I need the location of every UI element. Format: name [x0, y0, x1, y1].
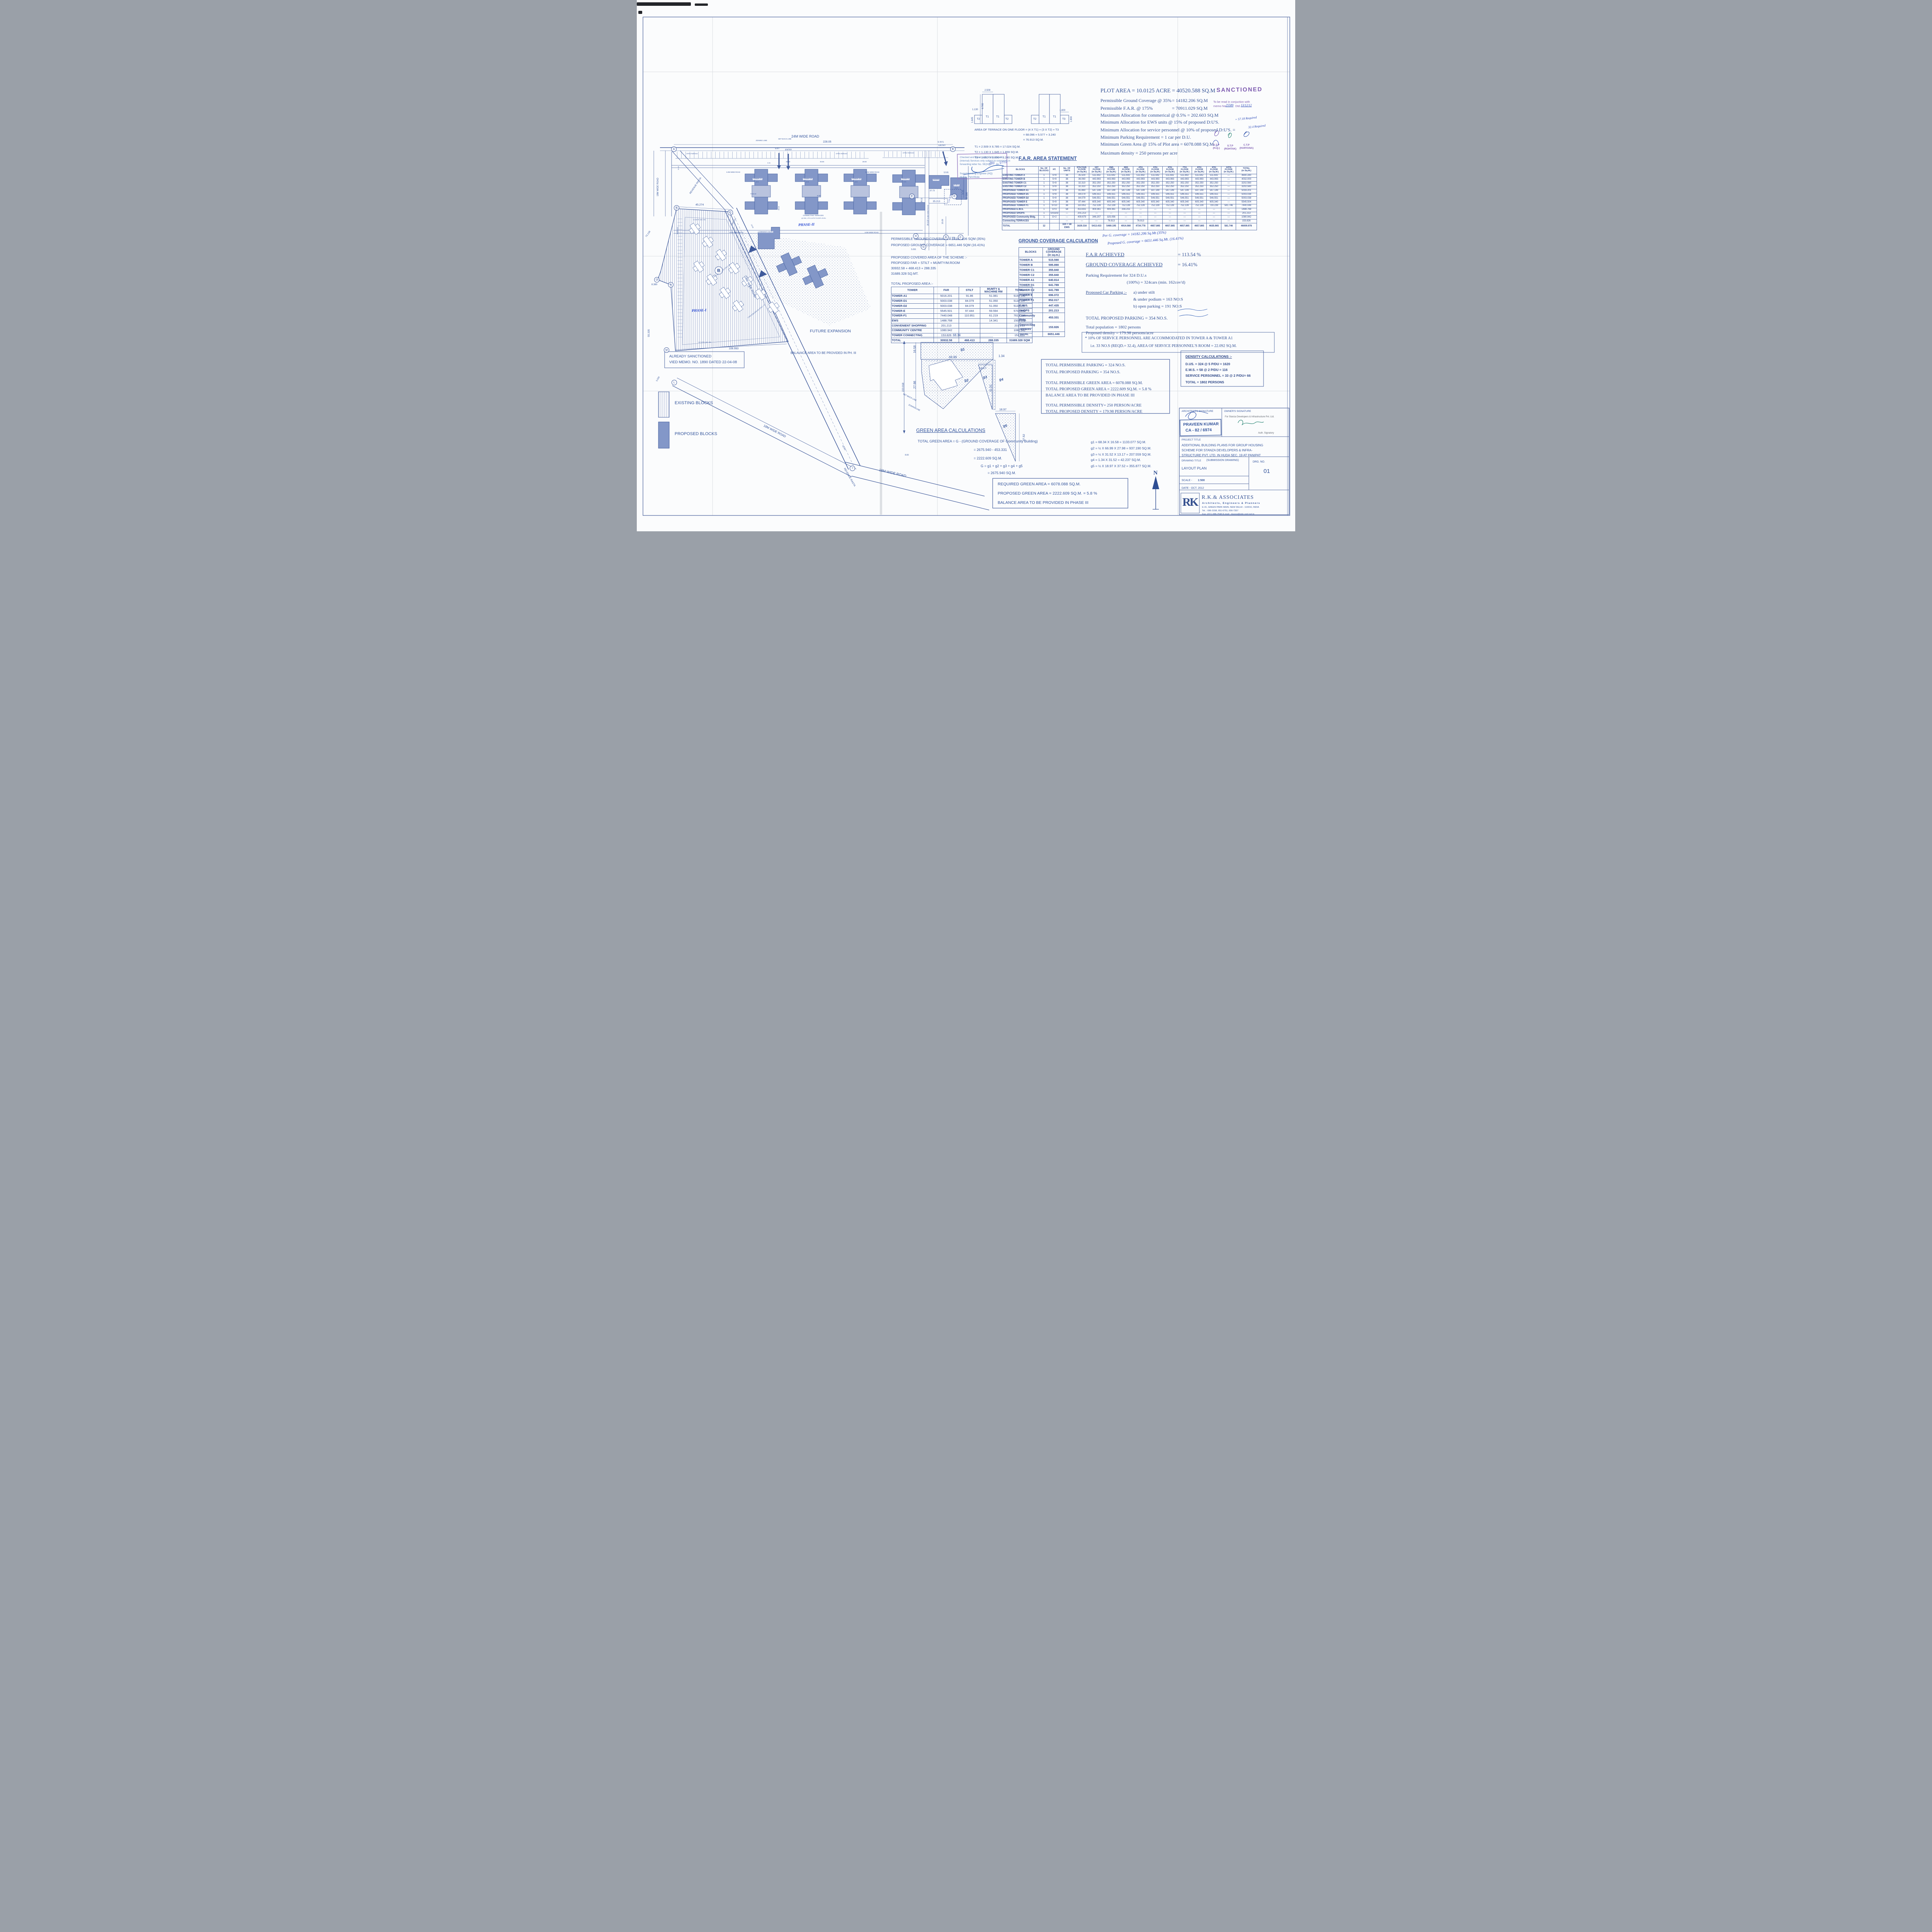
survey-point-marker: R	[674, 205, 679, 211]
table-cell: 1	[1039, 208, 1049, 212]
table-cell: PROPOSED E.W.S.	[1002, 208, 1039, 212]
table-cell: 409.679	[1075, 216, 1089, 219]
table-cell: 511.642	[1133, 174, 1148, 178]
plan-label: PROPOSED FAR + STILT + MUMTY/M.ROOM	[891, 261, 960, 265]
table-cell: 546.551	[1163, 193, 1177, 197]
plan-label: D.US. = 324 @ 5 P/DU = 1620	[1185, 362, 1230, 366]
table-cell: 352.250	[1119, 185, 1133, 189]
table-cell: ---	[1163, 219, 1177, 223]
table-row: TOTAL30932.58468.413288.33531689.328 SQM	[891, 338, 1032, 343]
plan-label: S+9	[855, 181, 857, 183]
table-cell: ---	[1221, 193, 1236, 197]
plan-label: & under podium = 163 NO:S	[1133, 298, 1183, 302]
plan-label: = 14182.206 SQ.M	[1172, 98, 1208, 103]
table-cell: 36	[1060, 193, 1075, 197]
table-cell	[959, 318, 980, 323]
plan-label: = 113.54 %	[1178, 252, 1201, 257]
plan-label: TOTAL PERMISSIBLE PARKING = 324 NO.S.	[1046, 363, 1126, 367]
table-cell: ---	[1221, 219, 1236, 223]
table-cell: ---	[1221, 216, 1236, 219]
plan-label: Parking Requirement for 324 D.U.s	[1086, 274, 1146, 278]
table-cell: 4657.865	[1163, 223, 1177, 230]
plan-label: TOTAL PERMISSIBLE DENSITY= 250 PERSON/AC…	[1046, 403, 1141, 408]
column-header: 5TH FLOOR (in Sq.M.)	[1148, 167, 1163, 174]
column-header: BLOCKS	[1019, 248, 1043, 257]
plan-label: 66.99	[949, 356, 957, 359]
plan-label: 1.800	[1070, 116, 1073, 122]
table-cell: 443.993	[1133, 178, 1148, 182]
table-cell: 547.149	[1119, 189, 1133, 193]
plan-label: T1	[996, 116, 999, 119]
table-row: TOWER-D15003.03884.07951.0505138.167	[891, 299, 1032, 304]
column-header: 2ND FLOOR (in Sq.M.)	[1104, 167, 1119, 174]
table-cell: 453.331	[1043, 313, 1065, 322]
table-cell: 752.139	[1133, 204, 1148, 208]
column-header: BLOCKS	[1002, 167, 1039, 174]
plan-label: g3 = ½ X 31.52 X 13.17 = 207.559 SQ.M.	[1091, 453, 1151, 456]
table-cell: 7440.048	[1236, 204, 1257, 208]
table-cell: 1080.942	[1236, 216, 1257, 219]
table-cell: 61.219	[980, 313, 1007, 318]
plan-label: 31.52	[989, 384, 992, 392]
table-cell: 153.826	[1043, 322, 1065, 332]
plot-area-label: PLOT AREA = 10.0125 ACRE	[1100, 88, 1171, 94]
table-cell: S+9	[1049, 201, 1060, 204]
plan-label: 16.58	[913, 345, 917, 353]
plan-label: T2	[977, 118, 980, 121]
plan-label: TOTAL PROPOSED DENSITY = 179.98 PERSON/A…	[1046, 410, 1142, 414]
plan-label: g2	[964, 379, 969, 383]
table-cell: 352.250	[1192, 185, 1207, 189]
plan-label: Total population = 1802 persons	[1086, 325, 1141, 330]
table-cell: TOWER C2	[1019, 272, 1043, 277]
survey-point-marker: O	[654, 277, 660, 282]
table-row: TOWER A1640.814	[1019, 277, 1065, 282]
table-cell: 443.993	[1148, 178, 1163, 182]
table-cell: 153.826	[1236, 219, 1257, 223]
column-header: TOTAL	[1007, 287, 1032, 294]
table-cell: ---	[1133, 212, 1148, 216]
table-cell	[980, 333, 1007, 338]
plan-label: 50.306	[966, 192, 968, 199]
table-cell: TOTAL	[891, 338, 934, 343]
plan-label: DATE - OCT. 2012	[1182, 487, 1204, 490]
plan-label: 25.68	[786, 161, 790, 163]
plan-label: BALANCE AREA TO BE PROVIDED IN PHASE III	[998, 501, 1088, 505]
table-cell: 1	[1039, 178, 1049, 182]
table-cell: 511.642	[1104, 174, 1119, 178]
table-cell: 4734.778	[1133, 223, 1148, 230]
table-cell: 696.072	[1043, 293, 1065, 298]
plan-label: F.A.R ACHIEVED	[1086, 252, 1124, 257]
table-cell: 515.590	[1043, 257, 1065, 262]
table-cell: 752.139	[1163, 204, 1177, 208]
table-row: TOWER-D25003.03884.07951.0505138.167	[891, 304, 1032, 309]
table-cell: 546.551	[1104, 197, 1119, 201]
table-cell: 201.213	[1236, 212, 1257, 216]
table-row: EXISTING TOWER A1S+93635.500511.642511.6…	[1002, 174, 1257, 178]
table-cell: 546.551	[1104, 193, 1119, 197]
table-cell: 443.993	[1163, 178, 1177, 182]
table-cell: ---	[1221, 182, 1236, 185]
table-cell: 36	[1060, 189, 1075, 193]
table-cell: 352.250	[1133, 185, 1148, 189]
plan-label: = 2675.940 - 453.331	[974, 448, 1007, 452]
table-cell: 91.860	[1075, 189, 1089, 193]
table-cell: 852.017	[1043, 298, 1065, 303]
table-cell: S+9	[1049, 174, 1060, 178]
table-cell: 84.079	[1075, 197, 1089, 201]
plan-label: Proposed Car Parking :-	[1086, 291, 1127, 295]
table-cell: 511.642	[1163, 174, 1177, 178]
table-cell: 51.081	[980, 294, 1007, 299]
plan-label: 18M WIDE ROAD	[657, 178, 659, 196]
survey-point-marker: G	[921, 244, 926, 250]
table-cell: 352.250	[1207, 185, 1221, 189]
table-cell: S+9	[1049, 193, 1060, 197]
table-cell: G+3	[1049, 208, 1060, 212]
table-cell: 201.213	[1007, 323, 1032, 328]
table-cell: S+9	[1049, 182, 1060, 185]
far-area-statement-table: BLOCKSNo. OF BLOCKSHT.No. OF UNITSSTILT/…	[1002, 166, 1257, 230]
plan-label: TOTAL PERMISSIBLE GREEN AREA = 6078.088 …	[1046, 381, 1143, 385]
north-label: N	[1153, 470, 1158, 476]
plan-label: g5	[1003, 424, 1007, 428]
plan-label: TOTAL GREEN AREA = G - (GROUND COVERAGE …	[918, 440, 1038, 444]
table-cell: 443.993	[1177, 178, 1192, 182]
plan-label: 5.091	[911, 249, 916, 251]
table-cell: 4657.865	[1177, 223, 1192, 230]
drg-no: 01	[1264, 468, 1270, 474]
plan-label: 8.380	[651, 284, 657, 286]
plan-label: 37.52	[1022, 434, 1026, 441]
table-cell: 1629.316	[1075, 223, 1089, 230]
table-cell: 1	[1039, 189, 1049, 193]
table-cell: 153.826	[934, 333, 959, 338]
table-cell: 4032.000	[1236, 178, 1257, 182]
table-row: TOWER C2355.840	[1019, 272, 1065, 277]
plan-label: 2.509	[985, 89, 990, 92]
plan-label: (SUBMISSION DRAWING)	[1206, 459, 1239, 462]
table-cell: ---	[1177, 219, 1192, 223]
plan-label: G = g1 + g2 + g3 + g4 + g5	[981, 464, 1022, 468]
plan-label: = 70911.029 SQ.M	[1172, 106, 1207, 111]
plan-label: 6.0M WIDE ROAD	[865, 232, 879, 234]
plan-label: TOTAL PROPOSED PARKING = 354 NO.S.	[1086, 316, 1168, 321]
table-cell	[959, 333, 980, 338]
table-cell: 546.551	[1192, 193, 1207, 197]
table-row: EWS1488.76814.3411503.109	[891, 318, 1032, 323]
table-cell: 546.551	[1133, 197, 1148, 201]
table-cell: PROPOSED TOWER F1	[1002, 204, 1039, 208]
table-cell: 595.890	[1043, 262, 1065, 267]
table-cell: ---	[1119, 219, 1133, 223]
column-header: No. OF UNITS	[1060, 167, 1075, 174]
table-cell: ---	[1192, 216, 1207, 219]
table-row: TOWER-A15016.20191.8651.0815159.142	[891, 294, 1032, 299]
plan-label: 30932.58 + 468.413 + 288.335	[891, 267, 936, 270]
plan-label: Tel. : 696-3158, 651-6751, 656-7357	[1202, 510, 1238, 512]
table-cell: 352.250	[1177, 185, 1192, 189]
table-row: PROPOSED E.W.S.1G+358413.831409.361409.3…	[1002, 208, 1257, 212]
plan-label: 18.97	[999, 408, 1007, 411]
plan-label: Checked and found ok for Public Health	[960, 156, 1003, 159]
table-cell: 288.335	[980, 338, 1007, 343]
table-cell: S+9	[1049, 189, 1060, 193]
table-cell: 32.310	[1075, 182, 1089, 185]
plan-label: G+3	[955, 187, 958, 189]
table-cell: ---	[1163, 212, 1177, 216]
table-row: TOWER-F17440.048110.95161.2197612.218	[891, 313, 1032, 318]
plan-label: Superintending Engineer (HQ)	[960, 173, 993, 175]
ground-coverage-title: GROUND COVERAGE CALCULATION	[1019, 239, 1098, 243]
survey-point-marker: N	[668, 282, 673, 287]
table-cell: 5003.038	[934, 304, 959, 309]
table-cell: 581.746	[1221, 223, 1236, 230]
green-area-title: GREEN AREA CALCULATIONS	[916, 428, 985, 434]
plan-label: Maximum Allocation for commerical @ 0.5%…	[1100, 113, 1218, 118]
table-cell: 511.642	[1207, 174, 1221, 178]
table-cell: 547.149	[1192, 189, 1207, 193]
table-cell: 352.250	[1104, 185, 1119, 189]
table-cell: PROPOSED TOWER E	[1002, 201, 1039, 204]
column-header: 4TH FLOOR (in Sq.M.)	[1133, 167, 1148, 174]
table-cell: 547.149	[1133, 189, 1148, 193]
plan-label: Minimum Allocation for service personnel…	[1100, 128, 1235, 133]
table-cell: 4635.965	[1207, 223, 1221, 230]
plan-label: OWNER'S SIGNATURE	[1224, 410, 1251, 413]
table-cell: 3202.560	[1236, 182, 1257, 185]
required-green-area: REQUIRED GREEN AREA = 6078.088 SQ.M.	[998, 482, 1080, 486]
table-cell: ---	[1148, 208, 1163, 212]
table-cell: 752.139	[1119, 204, 1133, 208]
column-header: TOWER	[891, 287, 934, 294]
plan-label: TOWER D2	[852, 178, 861, 180]
table-row: TOWER A515.590	[1019, 257, 1065, 262]
table-cell: 110.951	[1075, 204, 1089, 208]
column-header: 6TH FLOOR (in Sq.M.)	[1163, 167, 1177, 174]
plan-label: SERVICE PERSONNEL = 33 @ 2 P/DU= 66	[1185, 374, 1251, 378]
column-header: 10TH FLOOR (in Sq.M.)	[1221, 167, 1236, 174]
table-cell: ---	[1163, 216, 1177, 219]
table-cell: 352.250	[1133, 182, 1148, 185]
drawing-title: LAYOUT PLAN	[1182, 467, 1207, 471]
table-cell: 346.207	[1089, 216, 1104, 219]
plan-label: S.T.P	[1227, 145, 1233, 147]
table-cell	[980, 328, 1007, 333]
plan-label: g1 = 68.34 X 16.58 = 1133.077 SQ.M.	[1091, 440, 1146, 444]
table-cell: TOWER CONNECTING	[891, 333, 934, 338]
plan-label: 13.17	[979, 367, 986, 370]
table-cell: EXISTING TOWER C2	[1002, 185, 1039, 189]
table-cell: EXISTING TOWER A	[1002, 174, 1039, 178]
table-cell: 752.139	[1148, 204, 1163, 208]
table-cell: ---	[1163, 208, 1177, 212]
survey-point-marker: M	[664, 347, 669, 353]
table-cell: 6651.446	[1043, 332, 1065, 337]
table-cell: TOWER-E	[891, 309, 934, 314]
plan-label: SCALE -	[1182, 479, 1192, 482]
table-cell: 352.250	[1163, 185, 1177, 189]
table-cell: PROPOSED TOWER A1	[1002, 189, 1039, 193]
table-cell: ---	[1221, 178, 1236, 182]
plan-label: 5.06	[767, 162, 770, 164]
table-cell: 7612.218	[1007, 313, 1032, 318]
table-cell: 1080.942	[934, 328, 959, 333]
table-cell: PROPOSED TOWER D1	[1002, 193, 1039, 197]
table-cell: 641.789	[1043, 282, 1065, 287]
table-cell: TOWER A	[1019, 257, 1043, 262]
table-cell: 730.239	[1207, 204, 1221, 208]
table-cell: 5003.038	[934, 299, 959, 304]
table-cell: 5138.167	[1007, 304, 1032, 309]
table-cell: 352.250	[1177, 182, 1192, 185]
table-cell: 31689.328 SQM	[1007, 338, 1032, 343]
already-sanctioned: ALREADY SANCTIONED	[669, 355, 711, 359]
plan-label: GROUND COVERAGE ACHIEVED	[1086, 262, 1163, 267]
plan-label: Maximum density = 250 persons per acre	[1100, 151, 1177, 156]
table-cell: 352.250	[1207, 182, 1221, 185]
table-row: COMMUNITY CENTRE1080.9421080.942	[891, 328, 1032, 333]
plan-label: TOTAL PROPOSED PARKING = 354 NO.S.	[1046, 370, 1120, 374]
table-cell: ---	[1177, 212, 1192, 216]
table-cell: 36	[1060, 201, 1075, 204]
plan-label: PROPOSED GREEN AREA = 2222.609 SQ.M. = 5…	[998, 492, 1097, 496]
plan-label: CONNECTING TERRACES	[803, 215, 823, 217]
table-cell: 1	[1039, 174, 1049, 178]
table-cell: 1	[1039, 185, 1049, 189]
survey-point-marker: B	[950, 146, 956, 152]
table-row: EXISTING TOWER C21S+93632.310352.250352.…	[1002, 185, 1257, 189]
table-cell: 443.993	[1207, 178, 1221, 182]
table-cell: TOWER A1	[1019, 277, 1043, 282]
plan-label: 1.800	[1060, 109, 1065, 112]
plan-label: Auth. Signatory	[1258, 432, 1274, 434]
table-cell: Ground	[1049, 212, 1060, 216]
plan-label: To be read in conjuction with	[1213, 100, 1250, 104]
table-cell: 352.250	[1163, 182, 1177, 185]
column-header: STILT/GR. FLOOR (in Sq.M.)	[1075, 167, 1089, 174]
table-cell: ---	[1060, 216, 1075, 219]
rk-logo: RK	[1182, 496, 1197, 509]
table-cell: 546.551	[1163, 197, 1177, 201]
table-cell: 640.814	[1043, 277, 1065, 282]
plan-label: (100%) = 324cars (min. 162cov'd)	[1127, 281, 1185, 285]
table-row: EXISTING TOWER B1S+93636.060443.993443.9…	[1002, 178, 1257, 182]
far-statement-title: F.A.R. AREA STATEMENT	[1019, 156, 1077, 162]
table-row: TOWER C1355.840	[1019, 267, 1065, 272]
column-header: 3RD FLOOR (in Sq.M.)	[1119, 167, 1133, 174]
table-cell: EXISTING TOWER B	[1002, 178, 1039, 182]
table-cell: ---	[1075, 219, 1089, 223]
table-cell: 546.551	[1089, 197, 1104, 201]
table-cell: 1	[1039, 197, 1049, 201]
plan-label: T1	[1053, 116, 1056, 119]
table-cell: ---	[1119, 216, 1133, 219]
plan-label: TOWER E	[901, 178, 910, 180]
plan-label: Minimum Allocation for EWS units @ 15% o…	[1100, 120, 1219, 125]
road-label: 24M WIDE ROAD	[791, 135, 819, 139]
table-cell: TOWER-D1	[891, 299, 934, 304]
table-cell: 1080.942	[1007, 328, 1032, 333]
table-cell: TOWER-D2	[891, 304, 934, 309]
plan-label: PARKING	[677, 227, 679, 234]
table-cell: ---	[1148, 212, 1163, 216]
table-cell: ---	[1192, 219, 1207, 223]
table-cell: 547.149	[1177, 189, 1192, 193]
plan-label: Dtd	[1235, 105, 1240, 108]
sanctioned-stamp: SANCTIONED	[1216, 87, 1262, 94]
table-cell	[959, 323, 980, 328]
table-cell: EXISTING TOWER C1	[1002, 182, 1039, 185]
plan-label: OPEN PARKING	[903, 152, 914, 154]
plan-label: SHOPS	[933, 179, 939, 181]
table-cell	[1039, 219, 1049, 223]
plan-label: CA - 82 / 6974	[1185, 428, 1212, 433]
table-cell: 36	[1060, 185, 1075, 189]
table-cell: 352.250	[1148, 182, 1163, 185]
plan-label: = 40520.588 SQ.M	[1172, 88, 1215, 94]
table-cell: 36	[1060, 197, 1075, 201]
plan-label: OPEN PARKING	[836, 153, 847, 155]
table-cell: 36	[1060, 182, 1075, 185]
plan-label: PROJECT TITLE	[1182, 439, 1201, 441]
table-cell: S+10	[1049, 204, 1060, 208]
plan-label: 45.274	[696, 204, 704, 207]
table-cell: 1	[1039, 182, 1049, 185]
survey-point-marker: A	[671, 146, 677, 152]
table-cell: 605.340	[1119, 201, 1133, 204]
table-cell: 1488.768	[1236, 208, 1257, 212]
plan-label: (ROHTAK)	[1224, 148, 1236, 150]
table-cell: ---	[1221, 174, 1236, 178]
plan-label: Dt	[996, 163, 998, 166]
plan-label: ARCHITECT'S SIGNATURE	[1182, 410, 1213, 413]
table-cell: 51.050	[980, 299, 1007, 304]
plan-label: 11.18	[678, 166, 679, 170]
future-expansion: FUTURE EXPANSION	[810, 329, 851, 333]
table-cell: ---	[1133, 208, 1148, 212]
table-cell	[1049, 223, 1060, 230]
table-row: PROPOSED TOWER D11S+93684.079546.551546.…	[1002, 193, 1257, 197]
plan-label: DRAWING TITLE	[1182, 459, 1201, 462]
plan-label: ENTRY	[785, 149, 792, 151]
plan-label: = 76.913 SQ.M.	[1023, 138, 1044, 141]
plan-label: 25.66	[820, 161, 824, 163]
plan-label: ENTRY	[939, 145, 946, 147]
plan-label: EXIT	[775, 148, 780, 150]
table-cell: 352.250	[1148, 185, 1163, 189]
plan-label: Permissible F.A.R. @ 175%	[1100, 106, 1153, 111]
table-cell: 443.993	[1089, 178, 1104, 182]
plan-label: BALANCE AREA TO BE PROVIDED IN PHASE III	[1046, 393, 1134, 398]
phase-2-label: PHASE-II	[798, 223, 815, 228]
table-cell: 1	[1039, 201, 1049, 204]
plan-label: 1.130	[972, 109, 978, 111]
survey-point-marker: C	[958, 235, 963, 240]
column-header: TOTAL (in Sq.M.)	[1236, 167, 1257, 174]
plan-label: g4 = 1.34 X 31.52 = 42.237 SQ.M.	[1091, 458, 1141, 462]
plan-label: Architects, Engineers & Planners	[1202, 502, 1260, 505]
plan-label: 31689.328 SQ.MT.	[891, 272, 918, 276]
survey-point-marker: E	[952, 194, 957, 199]
plan-label: 293	[989, 162, 995, 165]
table-cell: 12	[1039, 223, 1049, 230]
plan-label: TOTAL PROPOSED GREEN AREA = 2222.609 SQ.…	[1046, 387, 1151, 391]
table-cell: 36	[1060, 204, 1075, 208]
patable: TOWERFARSTILTMUMTY & MACHINE RMTOTALTOWE…	[891, 287, 1032, 343]
table-cell: ---	[1207, 212, 1221, 216]
